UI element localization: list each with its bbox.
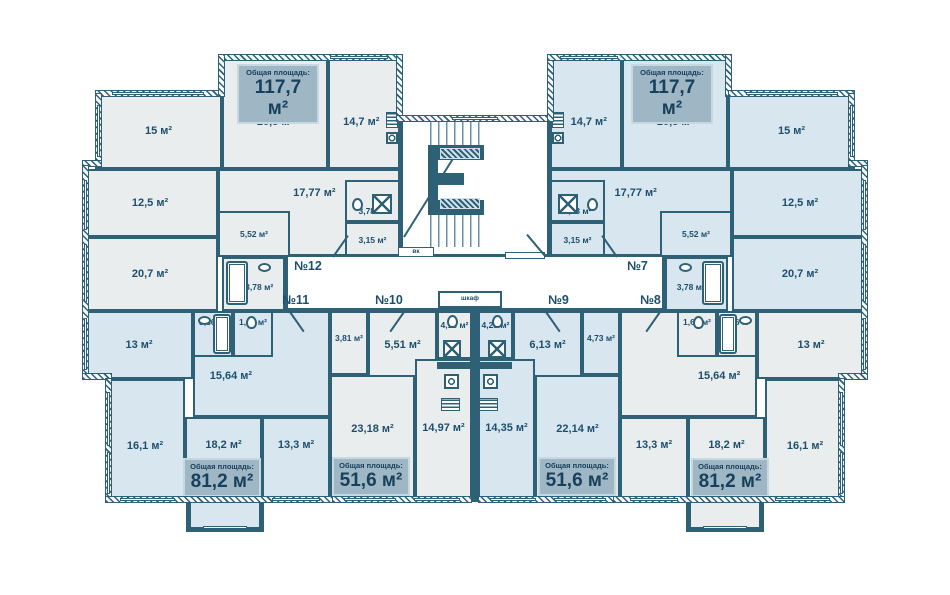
bathtub-icon [213,314,231,354]
room-area-label: 13 м² [125,339,152,351]
room: 16,1 м² [105,379,185,502]
room: 12,5 м² [732,169,868,237]
bathtub-icon [702,261,724,305]
washing-machine-icon [444,374,459,389]
stair-door-opening [505,252,545,259]
room-area-label: 16,1 м² [127,440,163,452]
window [560,56,618,59]
wall [471,311,478,502]
exterior-wall [218,54,225,97]
toilet-icon [447,315,458,328]
toilet-icon [246,316,257,329]
total-area-badge: Общая площадь: 117,7 м² [237,64,319,124]
window [703,526,747,529]
room-area-label: 12,5 м² [132,197,168,209]
window [344,498,396,501]
room-area-label: 14,7 м² [571,116,607,128]
room: 13 м² [757,311,865,379]
apartment-number: №11 [282,293,309,307]
shower-icon [558,194,578,214]
room-area-label: 13 м² [797,339,824,351]
toilet-icon [352,198,363,211]
room: 5,52 м² [660,211,732,257]
room: 4,73 м² [582,311,620,375]
window [452,117,498,120]
vent-shaft-icon [488,340,506,358]
window [97,105,100,157]
window [775,498,830,501]
room-area-label: 15 м² [145,125,172,137]
room-area-label: 23,18 м² [351,423,393,435]
room-area-label: 18,2 м² [708,439,744,451]
window [84,318,87,370]
window [120,498,175,501]
apartment-number: №10 [375,293,403,307]
room-area-label: 3,78 м² [677,282,705,292]
apartment-number: №9 [548,293,569,307]
floor-plan: 15 м² 20,8 м² 14,7 м² 12,5 м² 17,77 м² 5… [0,0,950,595]
window [272,498,320,501]
room-area-label: 14,97 м² [422,422,464,434]
meter-box-icon [441,398,460,411]
room-area-label: 6,13 м² [529,339,565,351]
wall [288,254,400,257]
room: 20,7 м² [82,237,218,311]
room: 5,52 м² [218,211,290,257]
window [330,56,388,59]
kitchen-stove-icon [386,132,398,144]
room-area-label: 16,1 м² [787,440,823,452]
window [850,105,853,157]
window [414,498,460,501]
window [863,318,866,370]
room-area-label: 20,7 м² [782,268,818,280]
elevator-car [440,148,480,159]
window [840,392,843,446]
room-area-label: 17,77 м² [614,187,656,199]
room-area-label: 17,77 м² [293,187,335,199]
sink-icon [679,263,692,272]
window [112,92,204,95]
toilet-icon [492,315,503,328]
room: 15 м² [95,93,222,169]
room-area-label: 3,81 м² [335,333,363,343]
room: 16,1 м² [765,379,845,502]
stair-treads [430,215,484,247]
room-area-label: 5,52 м² [240,229,268,239]
room-area-label: 12,5 м² [782,197,818,209]
window [203,526,247,529]
total-area-badge: Общая площадь: 81,2 м² [691,458,769,497]
room-area-label: 15,64 м² [698,370,740,382]
exterior-wall [396,54,403,122]
room: 3,15 м² [345,222,400,257]
closet-box: шкаф [438,291,502,308]
counter [478,362,512,369]
utility-box: вк [398,247,434,257]
wall [662,257,667,311]
room-area-label: 14,35 м² [485,422,527,434]
apartment-number: №7 [627,259,648,273]
room-area-label: 20,7 м² [132,268,168,280]
utility-box-label: вк [412,249,419,256]
room-area-label: 3,78 м² [245,282,273,292]
washing-machine-icon [483,374,498,389]
kitchen-stove-icon [552,132,564,144]
total-area-value: 81,2 м² [697,472,763,493]
sink-icon [198,316,211,325]
total-area-badge: Общая площадь: 51,6 м² [538,457,616,496]
room: 12,5 м² [82,169,218,237]
window [554,498,606,501]
vent-shaft-icon [443,340,461,358]
window [746,92,838,95]
stair-treads [430,122,484,147]
total-area-badge: Общая площадь: 81,2 м² [183,458,261,497]
toilet-icon [693,316,704,329]
total-area-value: 51,6 м² [544,471,610,492]
room: 3,81 м² [330,311,368,375]
total-area-value: 117,7 м² [243,78,313,120]
wall [550,254,662,257]
room: 13 м² [85,311,193,379]
bathtub-icon [719,314,737,354]
room-area-label: 14,7 м² [343,116,379,128]
window [630,498,678,501]
room-area-label: 5,51 м² [384,339,420,351]
room-area-label: 4,73 м² [587,333,615,343]
shower-icon [372,194,392,214]
room: 13,3 м² [620,417,688,502]
total-area-value: 51,6 м² [338,471,404,492]
room-area-label: 3,15 м² [563,235,591,245]
total-area-badge: Общая площадь: 117,7 м² [631,64,713,124]
window [107,452,110,494]
room: 15 м² [728,93,855,169]
sink-icon [739,316,752,325]
room-area-label: 3,15 м² [358,235,386,245]
window [840,452,843,494]
apartment-number: №8 [640,293,661,307]
total-area-badge: Общая площадь: 51,6 м² [332,457,410,496]
room-area-label: 22,14 м² [556,423,598,435]
apartment-number: №12 [294,259,322,273]
room: 20,7 м² [732,237,868,311]
meter-box-icon [479,398,498,411]
window [84,180,87,230]
room-area-label: 18,2 м² [205,439,241,451]
window [863,244,866,302]
room: 3,15 м² [550,222,605,257]
toilet-icon [587,198,598,211]
window [490,498,536,501]
window [863,180,866,230]
bathtub-icon [226,261,248,305]
room-area-label: 5,52 м² [682,229,710,239]
room-area-label: 15 м² [778,125,805,137]
window [84,244,87,302]
room-area-label: 13,3 м² [278,439,314,451]
sink-icon [258,263,271,272]
total-area-value: 81,2 м² [189,472,255,493]
counter [437,362,471,369]
room-area-label: 15,64 м² [210,370,252,382]
room: 13,3 м² [262,417,330,502]
elevator-car [440,198,480,209]
exterior-wall [547,54,554,122]
room-area-label: 13,3 м² [636,439,672,451]
closet-label: шкаф [461,296,479,303]
total-area-value: 117,7 м² [637,78,707,120]
window [107,392,110,446]
